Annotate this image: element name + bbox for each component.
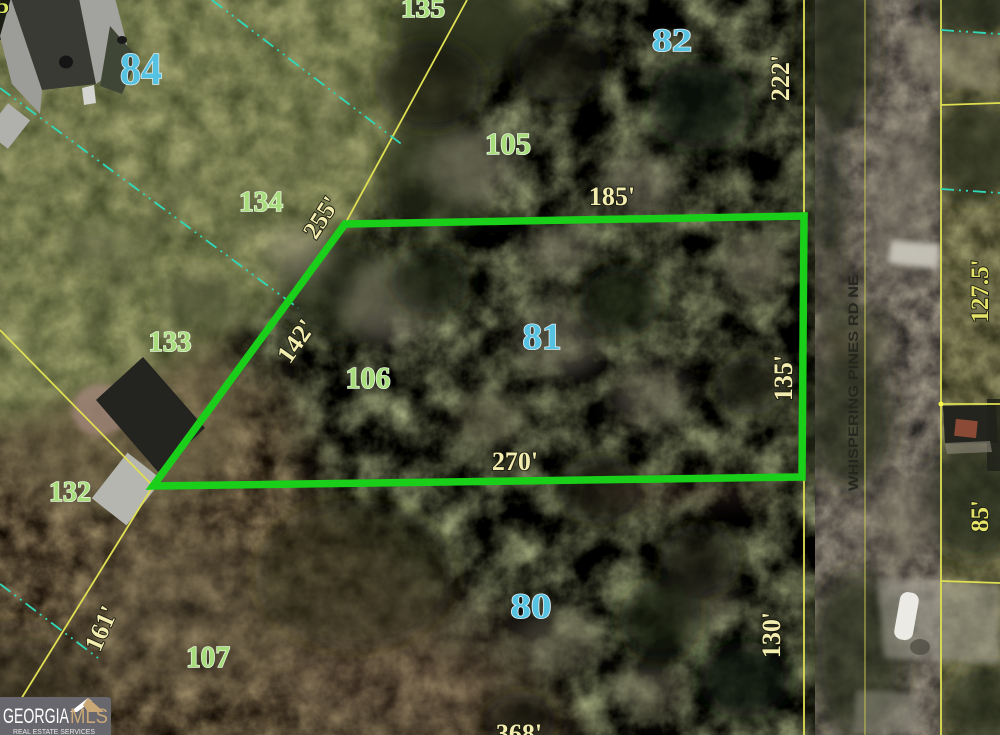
svg-text:127.5': 127.5' — [967, 259, 994, 322]
svg-text:107: 107 — [186, 639, 230, 674]
svg-text:135: 135 — [401, 0, 445, 23]
svg-text:185': 185' — [589, 182, 635, 211]
svg-text:84: 84 — [120, 43, 162, 94]
svg-text:REAL ESTATE SERVICES: REAL ESTATE SERVICES — [13, 727, 95, 735]
svg-text:85: 85 — [0, 0, 9, 19]
svg-text:222': 222' — [766, 55, 795, 101]
svg-text:85': 85' — [967, 500, 994, 532]
svg-text:132: 132 — [49, 477, 91, 508]
svg-text:106: 106 — [346, 360, 391, 395]
svg-text:WHISPERING PINES RD NE: WHISPERING PINES RD NE — [845, 275, 861, 491]
svg-text:GEORGIA: GEORGIA — [3, 705, 69, 728]
svg-text:270': 270' — [492, 447, 538, 476]
svg-text:130': 130' — [757, 612, 786, 658]
svg-text:82: 82 — [652, 23, 692, 59]
svg-text:133: 133 — [149, 327, 192, 358]
svg-text:MLS: MLS — [70, 705, 108, 728]
svg-text:105: 105 — [485, 126, 531, 161]
svg-text:134: 134 — [239, 187, 283, 218]
svg-text:81: 81 — [523, 317, 562, 358]
svg-text:368': 368' — [496, 719, 542, 735]
svg-text:80: 80 — [511, 586, 552, 626]
svg-text:135': 135' — [769, 355, 798, 401]
